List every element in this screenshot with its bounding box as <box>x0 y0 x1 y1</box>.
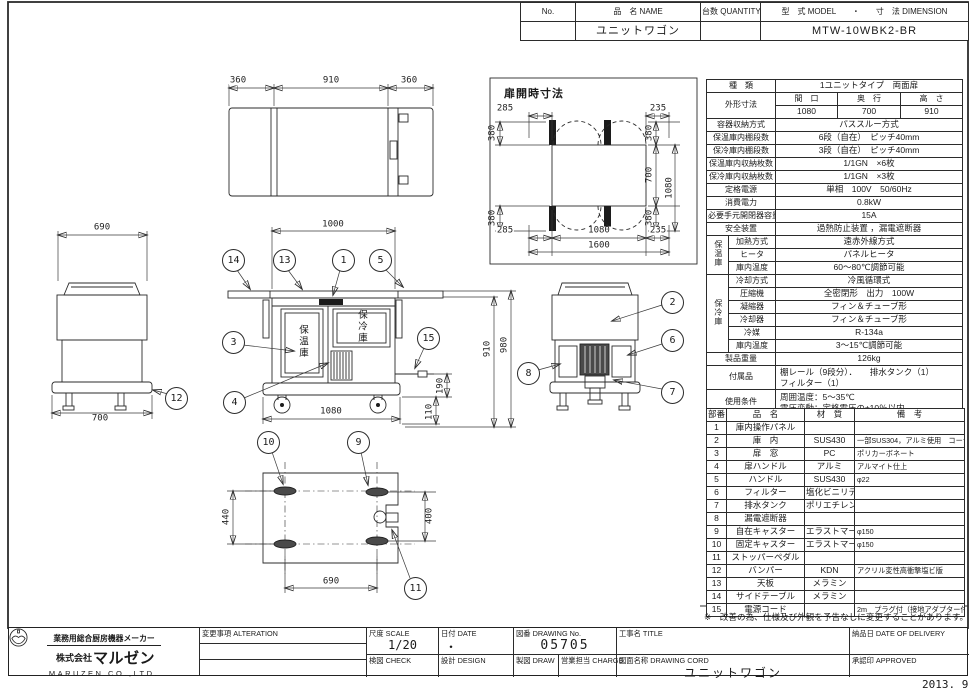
spec-depth-value: 700 <box>838 106 901 119</box>
balloon-7: 7 <box>661 381 684 404</box>
parts-row: 13 天板 メラミン <box>707 578 965 591</box>
parts-row: 4 扉ハンドル アルミ アルマイト仕上 <box>707 461 965 474</box>
spec-width-label: 間 口 <box>776 93 838 106</box>
scale-cell: 尺度 SCALE 1/20 <box>366 628 438 654</box>
date-value: ・ <box>445 638 513 655</box>
spec-row-label: 庫内温度 <box>729 262 776 275</box>
part-no: 1 <box>707 422 727 435</box>
balloon-8: 8 <box>517 362 540 385</box>
spec-accessories-value: 棚レール（9段分）． 排水タンク（1）フィルター（1） <box>776 366 963 390</box>
part-name: バンパー <box>727 565 805 578</box>
check-label: 検図 CHECK <box>369 656 411 666</box>
spec-row-value: 単相 100V 50/60Hz <box>776 184 963 197</box>
parts-row: 10 固定キャスター エラストマー φ150 <box>707 539 965 552</box>
qty-label: 台数 QUANTITY <box>701 3 761 22</box>
dim-door-380-lb: 380 <box>489 209 498 227</box>
cold-cabinet-group-label: 保冷庫 <box>707 275 729 353</box>
parts-row: 3 扉 窓 PC ポリカーボネート <box>707 448 965 461</box>
spec-row-value: 3段（自在） ピッチ40mm <box>776 145 963 158</box>
dim-door-1600: 1600 <box>587 242 611 251</box>
scale-value: 1/20 <box>367 638 438 652</box>
dim-left-690: 690 <box>93 224 111 233</box>
disclaimer-note: ※ 改善の為、仕様及び外観を予告なしに変更することがあります。 <box>704 611 966 623</box>
spec-row-value: R-134a <box>776 327 963 340</box>
spec-width-value: 1080 <box>776 106 838 119</box>
bottom-view <box>227 462 436 593</box>
part-note <box>855 552 965 565</box>
parts-row: 7 排水タンク ポリエチレン <box>707 500 965 513</box>
delivery-label: 納品日 DATE OF DELIVERY <box>852 629 945 639</box>
part-no: 2 <box>707 435 727 448</box>
part-material: SUS430 <box>805 474 855 487</box>
company-prefix: 株式会社 <box>56 651 92 664</box>
part-note <box>855 500 965 513</box>
spec-row-value: フィン＆チューブ形 <box>776 301 963 314</box>
spec-row-label: ヒータ <box>729 249 776 262</box>
part-note: φ150 <box>855 539 965 552</box>
dim-door-285-top: 285 <box>496 105 514 114</box>
part-material: ポリエチレン <box>805 500 855 513</box>
dim-top-360-left: 360 <box>229 77 247 86</box>
drawing-no-value: 05705 <box>514 638 616 653</box>
part-material: メラミン <box>805 591 855 604</box>
balloon-6: 6 <box>661 329 684 352</box>
balloon-14: 14 <box>222 249 245 272</box>
part-note: ポリカーボネート <box>855 448 965 461</box>
check-cell: 検図 CHECK <box>366 654 438 677</box>
spec-row-value: 過熱防止装置 ，漏電遮断器 <box>776 223 963 236</box>
part-material: 塩化ビニリデン <box>805 487 855 500</box>
company-name-en: MARUZEN CO.,LTD. <box>9 669 199 678</box>
date-stamp: 2013. 9 <box>922 678 968 691</box>
no-value <box>521 22 576 41</box>
spec-row-label: 必要手元開閉器容量 <box>707 210 776 223</box>
dim-door-235-bottom: 235 <box>649 227 667 236</box>
part-no: 12 <box>707 565 727 578</box>
spec-row-label: 冷媒 <box>729 327 776 340</box>
part-name: 固定キャスター <box>727 539 805 552</box>
part-no: 5 <box>707 474 727 487</box>
model-value: MTW-10WBK2-BR <box>761 22 969 41</box>
dim-front-1000: 1000 <box>321 221 345 230</box>
spec-row-label: 圧縮機 <box>729 288 776 301</box>
spec-kind-value: 1ユニットタイプ 両面扉 <box>776 80 963 93</box>
part-note: φ22 <box>855 474 965 487</box>
delivery-cell: 納品日 DATE OF DELIVERY <box>849 628 969 654</box>
model-dimension-label: 型 式 MODEL ・ 寸 法 DIMENSION <box>761 3 969 22</box>
balloon-9: 9 <box>347 431 370 454</box>
part-name: 自在キャスター <box>727 526 805 539</box>
part-name: 漏電遮断器 <box>727 513 805 526</box>
parts-row: 6 フィルター 塩化ビニリデン <box>707 487 965 500</box>
part-name: ハンドル <box>727 474 805 487</box>
balloon-13: 13 <box>273 249 296 272</box>
spec-height-value: 910 <box>901 106 963 119</box>
spec-row-label: 冷却方式 <box>729 275 776 288</box>
product-name-value: ユニットワゴン <box>576 22 701 41</box>
parts-row: 14 サイドテーブル メラミン <box>707 591 965 604</box>
part-name: 扉 窓 <box>727 448 805 461</box>
spec-row-label: 保冷庫内棚段数 <box>707 145 776 158</box>
part-note: アクリル変性高衝撃塩ビ版 <box>855 565 965 578</box>
part-name: フィルター <box>727 487 805 500</box>
spec-row-value: 1/1GN ×3枚 <box>776 171 963 184</box>
balloon-3: 3 <box>222 331 245 354</box>
left-side-view <box>52 231 152 419</box>
spec-weight-value: 126kg <box>776 353 963 366</box>
dim-front-980: 980 <box>501 336 510 354</box>
spec-row-value: 6段（自在） ピッチ40mm <box>776 132 963 145</box>
spec-table: 種 類 1ユニットタイプ 両面扉 外形寸法 間 口 奥 行 高 さ 1080 7… <box>706 79 963 416</box>
title-block: 業務用総合厨房機器メーカー 株式会社 マルゼン MARUZEN CO.,LTD.… <box>8 627 968 676</box>
part-material: KDN <box>805 565 855 578</box>
project-title-label: 工事名 TITLE <box>619 629 663 639</box>
spec-row-value: 1/1GN ×6枚 <box>776 158 963 171</box>
alteration-cell: 変更事項 ALTERATION <box>199 628 366 675</box>
part-material: メラミン <box>805 578 855 591</box>
spec-depth-label: 奥 行 <box>838 93 901 106</box>
dim-front-110: 110 <box>426 403 435 421</box>
no-label: No. <box>521 3 576 22</box>
parts-row: 1 庫内操作パネル <box>707 422 965 435</box>
spec-kind-label: 種 類 <box>707 80 776 93</box>
drawing-name-value: ユニットワゴン <box>617 664 849 681</box>
balloon-10: 10 <box>257 431 280 454</box>
spec-row-label: 凝縮器 <box>729 301 776 314</box>
spec-row-label: 加熱方式 <box>729 236 776 249</box>
spec-row-value: 遠赤外線方式 <box>776 236 963 249</box>
part-no: 11 <box>707 552 727 565</box>
draw-label: 製図 DRAW <box>516 656 555 666</box>
name-label: 品 名 NAME <box>576 3 701 22</box>
spec-row-label: 保冷庫内収納枚数 <box>707 171 776 184</box>
part-no: 7 <box>707 500 727 513</box>
parts-row: 9 自在キャスター エラストマー φ150 <box>707 526 965 539</box>
spec-row-label: 保温庫内棚段数 <box>707 132 776 145</box>
dim-door-700: 700 <box>646 166 655 184</box>
spec-dims-label: 外形寸法 <box>707 93 776 119</box>
right-side-view <box>550 283 640 410</box>
part-no: 9 <box>707 526 727 539</box>
part-note: アルマイト仕上 <box>855 461 965 474</box>
dim-bottom-440: 440 <box>223 508 232 526</box>
part-note: φ150 <box>855 526 965 539</box>
part-note <box>855 487 965 500</box>
charge-cell: 営業担当 CHARGE <box>558 654 616 677</box>
part-no: 4 <box>707 461 727 474</box>
part-material <box>805 513 855 526</box>
drawing-name-cell: 図面名称 DRAWING CORD ユニットワゴン <box>616 654 849 677</box>
balloon-2: 2 <box>661 291 684 314</box>
dim-front-1080: 1080 <box>319 408 343 417</box>
spec-height-label: 高 さ <box>901 93 963 106</box>
qty-value <box>701 22 761 41</box>
dim-door-380-lt: 380 <box>489 124 498 142</box>
part-material: エラストマー <box>805 526 855 539</box>
design-label: 設計 DESIGN <box>441 656 486 666</box>
cold-cabinet-door-label: 保冷庫 <box>354 310 368 345</box>
dim-top-910: 910 <box>322 77 340 86</box>
balloon-1: 1 <box>332 249 355 272</box>
dim-front-190: 190 <box>437 377 446 395</box>
drawing-sheet: 360 910 360 扉開時寸法 285 235 380 380 380 70… <box>0 0 976 692</box>
part-material <box>805 552 855 565</box>
spec-row-label: 容器収納方式 <box>707 119 776 132</box>
balloon-5: 5 <box>369 249 392 272</box>
dim-door-235-top: 235 <box>649 105 667 114</box>
parts-col-name: 品 名 <box>727 409 805 422</box>
dim-bottom-400: 400 <box>426 507 435 525</box>
maker-tagline: 業務用総合厨房機器メーカー <box>47 633 160 646</box>
part-no: 10 <box>707 539 727 552</box>
spec-row-label: 庫内温度 <box>729 340 776 353</box>
top-view <box>229 84 433 196</box>
part-no: 3 <box>707 448 727 461</box>
parts-col-note: 備 考 <box>855 409 965 422</box>
part-note <box>855 578 965 591</box>
parts-row: 12 バンパー KDN アクリル変性高衝撃塩ビ版 <box>707 565 965 578</box>
part-name: サイドテーブル <box>727 591 805 604</box>
part-note: 一部SUS304，アルミ使用 コーナー部R加工 <box>855 435 965 448</box>
part-no: 13 <box>707 578 727 591</box>
spec-row-label: 保温庫内収納枚数 <box>707 158 776 171</box>
part-no: 6 <box>707 487 727 500</box>
part-no: 8 <box>707 513 727 526</box>
spec-row-label: 定格電源 <box>707 184 776 197</box>
design-cell: 設計 DESIGN <box>438 654 513 677</box>
parts-row: 8 漏電遮断器 <box>707 513 965 526</box>
balloon-15: 15 <box>417 327 440 350</box>
charge-label: 営業担当 CHARGE <box>561 656 623 666</box>
part-material: PC <box>805 448 855 461</box>
spec-row-value: 60～80℃調節可能 <box>776 262 963 275</box>
dim-door-380-rt: 380 <box>646 124 655 142</box>
part-material: エラストマー <box>805 539 855 552</box>
hot-cabinet-door-label: 保温庫 <box>295 325 309 360</box>
draw-cell: 製図 DRAW <box>513 654 558 677</box>
dim-door-380-rb: 380 <box>646 209 655 227</box>
door-open-title: 扉開時寸法 <box>504 85 564 101</box>
part-name: 庫 内 <box>727 435 805 448</box>
parts-row: 5 ハンドル SUS430 φ22 <box>707 474 965 487</box>
approved-cell: 承認印 APPROVED <box>849 654 969 677</box>
spec-row-label: 冷却器 <box>729 314 776 327</box>
spec-row-value: 15A <box>776 210 963 223</box>
parts-row: 11 ストッパーペダル <box>707 552 965 565</box>
spec-row-value: 0.8kW <box>776 197 963 210</box>
spec-row-value: 全密閉形 出力 100W <box>776 288 963 301</box>
part-note <box>855 513 965 526</box>
spec-row-value: パススルー方式 <box>776 119 963 132</box>
spec-row-value: 3～15℃調節可能 <box>776 340 963 353</box>
dim-front-910: 910 <box>484 340 493 358</box>
part-material <box>805 422 855 435</box>
part-material: アルミ <box>805 461 855 474</box>
project-title-cell: 工事名 TITLE <box>616 628 849 654</box>
part-name: 天板 <box>727 578 805 591</box>
spec-weight-label: 製品重量 <box>707 353 776 366</box>
spec-row-value: 冷風循環式 <box>776 275 963 288</box>
balloon-4: 4 <box>223 391 246 414</box>
alteration-label: 変更事項 ALTERATION <box>202 629 278 639</box>
parts-table: 部番 品 名 材 質 備 考 1 庫内操作パネル 2 庫 内 SUS430 一部… <box>706 408 965 617</box>
part-name: 扉ハンドル <box>727 461 805 474</box>
drawing-no-cell: 図番 DRAWING No. 05705 <box>513 628 616 654</box>
hot-cabinet-group-label: 保温庫 <box>707 236 729 275</box>
approved-label: 承認印 APPROVED <box>852 656 916 666</box>
parts-col-no: 部番 <box>707 409 727 422</box>
parts-col-material: 材 質 <box>805 409 855 422</box>
spec-row-value: パネルヒータ <box>776 249 963 262</box>
maker-block: 業務用総合厨房機器メーカー 株式会社 マルゼン MARUZEN CO.,LTD. <box>9 628 199 675</box>
spec-row-label: 安全装置 <box>707 223 776 236</box>
balloon-11: 11 <box>404 577 427 600</box>
dim-door-1080-v: 1080 <box>666 176 675 200</box>
dim-bottom-690: 690 <box>322 578 340 587</box>
part-note <box>855 422 965 435</box>
spec-accessories-label: 付属品 <box>707 366 776 390</box>
dim-door-1080-bottom: 1080 <box>587 227 611 236</box>
spec-row-label: 消費電力 <box>707 197 776 210</box>
parts-row: 2 庫 内 SUS430 一部SUS304，アルミ使用 コーナー部R加工 <box>707 435 965 448</box>
part-name: ストッパーペダル <box>727 552 805 565</box>
company-name: マルゼン <box>93 647 155 668</box>
dim-door-285-bottom: 285 <box>496 227 514 236</box>
part-material: SUS430 <box>805 435 855 448</box>
spec-row-value: フィン＆チューブ形 <box>776 314 963 327</box>
dim-top-360-right: 360 <box>400 77 418 86</box>
part-name: 排水タンク <box>727 500 805 513</box>
part-no: 14 <box>707 591 727 604</box>
part-note <box>855 591 965 604</box>
balloon-leaders <box>153 269 662 578</box>
balloon-12: 12 <box>165 387 188 410</box>
date-cell: 日付 DATE ・ <box>438 628 513 654</box>
title-header-table: No. 品 名 NAME 台数 QUANTITY 型 式 MODEL ・ 寸 法… <box>520 2 969 41</box>
part-name: 庫内操作パネル <box>727 422 805 435</box>
dim-left-700: 700 <box>91 415 109 424</box>
